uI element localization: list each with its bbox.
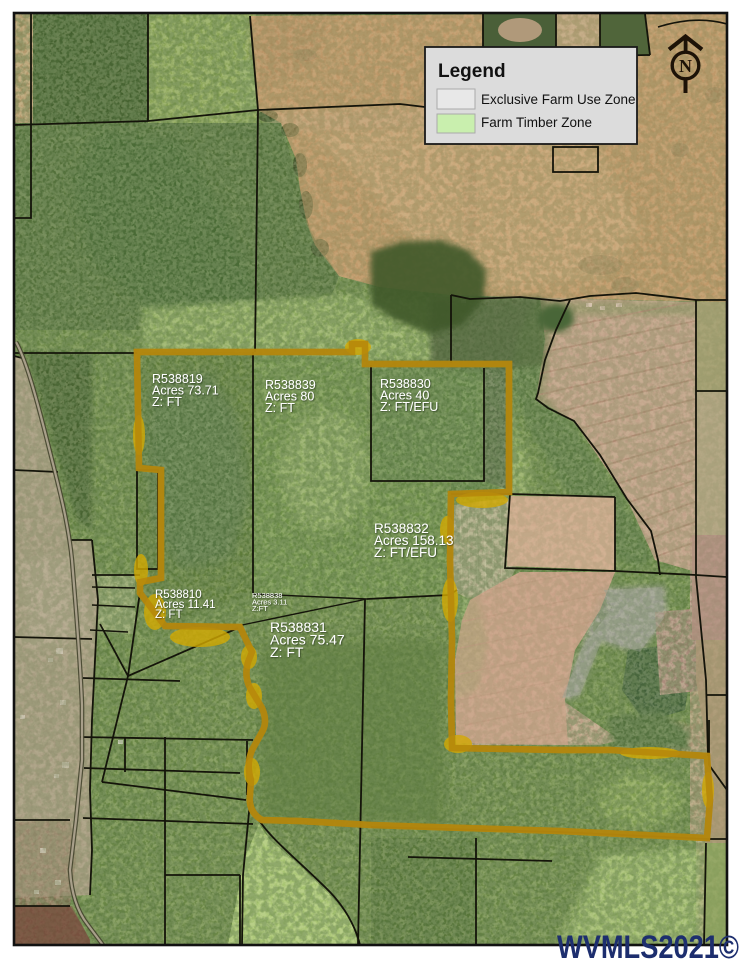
svg-text:Legend: Legend bbox=[438, 61, 506, 82]
svg-text:Farm Timber Zone: Farm Timber Zone bbox=[481, 115, 592, 130]
svg-text:WVMLS2021©: WVMLS2021© bbox=[557, 929, 739, 960]
svg-text:N: N bbox=[679, 56, 692, 76]
svg-text:Exclusive Farm Use Zone: Exclusive Farm Use Zone bbox=[481, 92, 636, 107]
